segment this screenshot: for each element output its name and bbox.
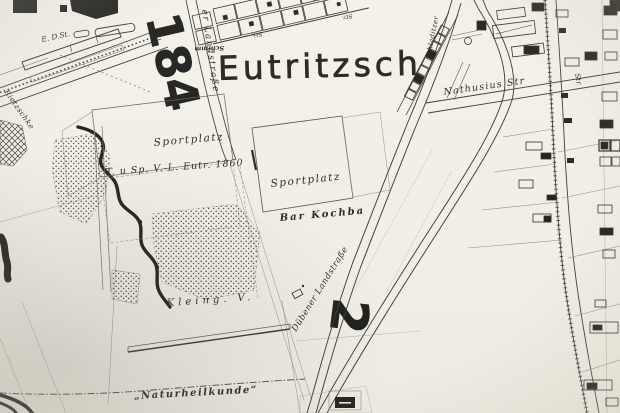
building-black xyxy=(13,0,37,13)
eutritzsch-map: E. D.St. Rietzschke 184 2 Eutritzsch Str… xyxy=(0,0,620,413)
label-plot-str-a: Str. xyxy=(251,30,263,38)
map-canvas: E. D.St. Rietzschke 184 2 Eutritzsch Str… xyxy=(0,0,620,413)
map-title: Eutritzsch xyxy=(217,44,422,88)
